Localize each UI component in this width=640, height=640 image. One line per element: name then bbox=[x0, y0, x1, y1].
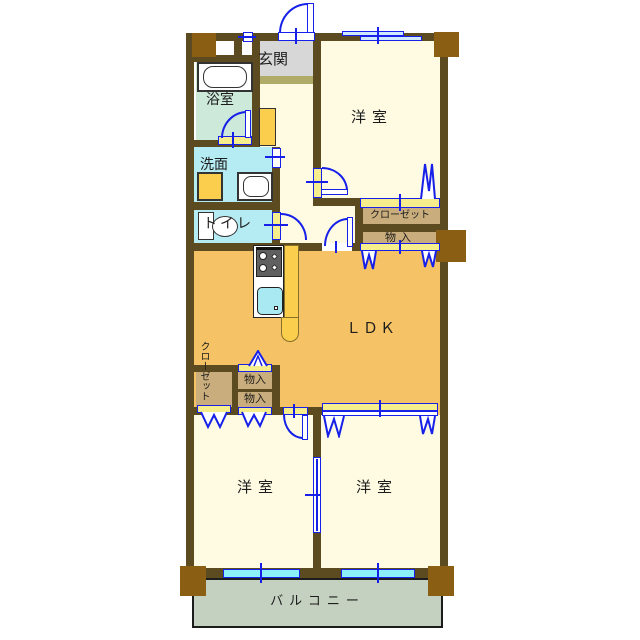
bedroom-top-window-sash-2 bbox=[360, 36, 422, 41]
bedroom-divider-tick bbox=[305, 494, 321, 496]
closet-right-sill-tick bbox=[399, 194, 401, 211]
pillar-bottom-left bbox=[180, 566, 206, 596]
toilet-door-frame bbox=[272, 212, 281, 240]
stove-burner-2 bbox=[259, 264, 267, 272]
kitchen-sink bbox=[257, 287, 283, 315]
kitchen-counter-foot bbox=[281, 317, 299, 342]
ldk-bedroom-door-sill bbox=[283, 407, 308, 415]
ldk-bedroom-door-leaf bbox=[302, 415, 308, 440]
storage-right-folding-door-icon-left bbox=[361, 250, 377, 270]
genkan-label: 玄関 bbox=[258, 52, 288, 67]
closet-left-label: クローゼット bbox=[198, 341, 208, 433]
bedroom-top-door-leaf bbox=[321, 189, 348, 195]
storage-lower-folding-door-icon bbox=[240, 411, 268, 428]
balcony-window-left-tick bbox=[260, 563, 262, 583]
balcony-window-right-tick bbox=[377, 563, 379, 583]
gas-stove bbox=[256, 247, 282, 277]
wall-washroom-toilet bbox=[194, 202, 272, 210]
wall-bedroom-top-bottom bbox=[313, 198, 363, 206]
bathroom-label: 浴室 bbox=[206, 93, 234, 107]
wall-left bbox=[186, 33, 194, 578]
washbasin-bowl bbox=[243, 176, 269, 197]
storage-lower-label: 物入 bbox=[238, 393, 272, 404]
entrance-door-leaf bbox=[307, 3, 314, 33]
balcony-label: バルコニー bbox=[192, 595, 443, 608]
ldk-bedroom-right-tick bbox=[379, 400, 381, 417]
closet-folding-door-icon bbox=[419, 163, 437, 200]
pillar-mid-right bbox=[436, 230, 466, 262]
pillar-top-right bbox=[434, 32, 459, 57]
bathtub-inner bbox=[203, 66, 247, 88]
bedroom-right-folding-door-icon-right bbox=[419, 415, 437, 436]
washing-machine bbox=[197, 172, 223, 201]
entrance-door-arc bbox=[279, 3, 308, 33]
bedroom-right-folding-door-icon-left bbox=[323, 415, 345, 438]
wall-right bbox=[440, 33, 448, 578]
bedroom-top-window-tick bbox=[377, 27, 379, 44]
toilet-door-tick bbox=[264, 224, 288, 226]
closet-right-label: クローゼット bbox=[360, 211, 440, 221]
hall-ldk-door-tick bbox=[335, 241, 337, 253]
floor-plan: 玄関 浴室 洗面 トイレ 洋室 クローゼット 物入 ＬＤＫ クローゼット 物入 … bbox=[0, 0, 640, 640]
hallway-storage-box bbox=[259, 108, 276, 146]
stove-burner-1 bbox=[259, 252, 267, 260]
genkan-small-window-tick bbox=[238, 36, 256, 38]
entrance-door-tick bbox=[295, 28, 297, 44]
washroom-window bbox=[272, 148, 281, 168]
ldk-label: ＬＤＫ bbox=[346, 321, 397, 336]
storage-upper-label: 物入 bbox=[238, 374, 272, 385]
storage-upper-folding-door-icon bbox=[248, 350, 268, 367]
washroom-window-tick bbox=[265, 156, 285, 158]
bathroom-door-leaf bbox=[245, 110, 251, 138]
bedroom-bottom-left-label: 洋室 bbox=[213, 480, 303, 495]
sink-drain bbox=[274, 306, 278, 310]
washroom-label: 洗面 bbox=[200, 158, 228, 172]
genkan-step bbox=[260, 76, 313, 84]
storage-right-folding-door-icon-right bbox=[421, 250, 437, 268]
toilet-label: トイレ bbox=[203, 217, 254, 231]
bedroom-top-door-tick bbox=[306, 181, 328, 183]
pillar-bottom-right bbox=[428, 566, 454, 596]
bathroom-door-tick bbox=[232, 132, 234, 148]
storage-right-label: 物入 bbox=[360, 232, 440, 243]
kitchen-counter-strip bbox=[284, 245, 299, 318]
pillar-top-left bbox=[192, 33, 216, 57]
wall-ldk-bottom-mid bbox=[308, 407, 322, 415]
bedroom-bottom-right-label: 洋室 bbox=[332, 480, 422, 495]
bedroom-top-label: 洋室 bbox=[351, 110, 393, 125]
hall-ldk-door-leaf bbox=[347, 217, 353, 247]
